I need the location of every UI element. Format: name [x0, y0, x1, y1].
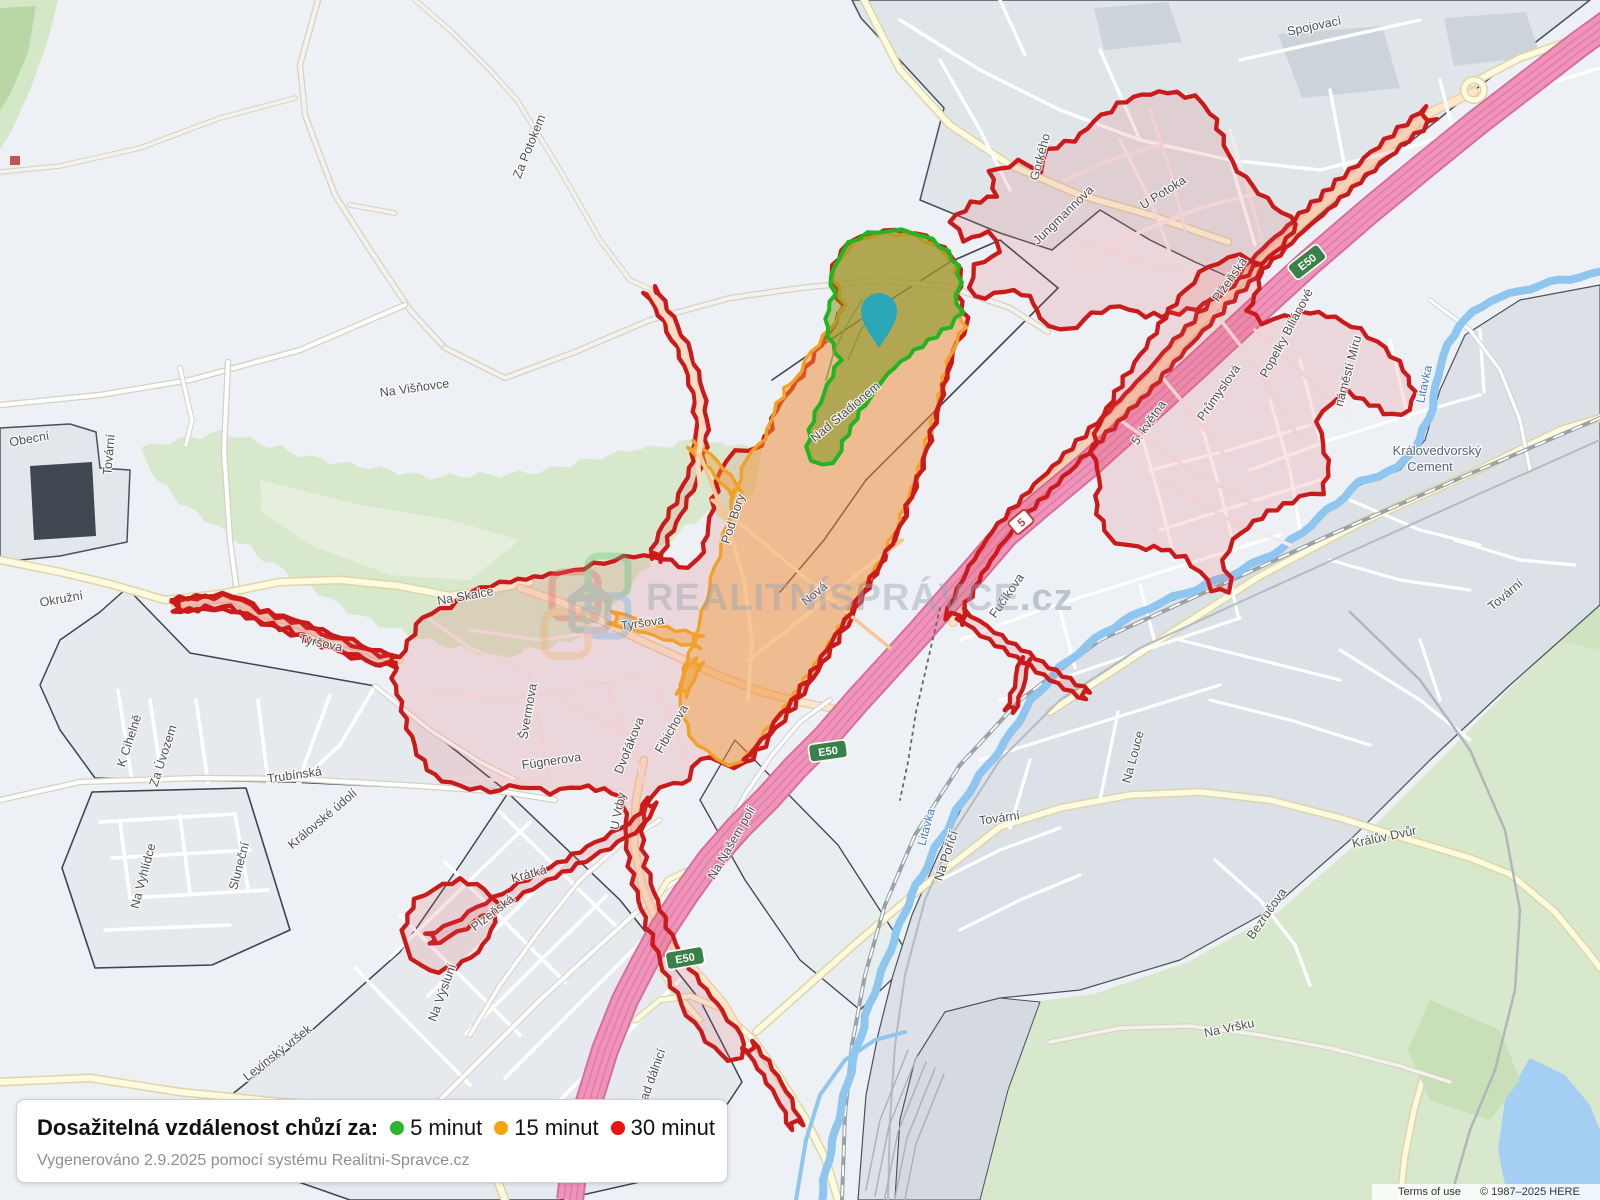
svg-text:Královedvorský: Královedvorský	[1393, 443, 1482, 458]
svg-text:REALITNÍSPRÁVCE.cz: REALITNÍSPRÁVCE.cz	[646, 575, 1074, 619]
svg-text:Cement: Cement	[1407, 459, 1453, 474]
